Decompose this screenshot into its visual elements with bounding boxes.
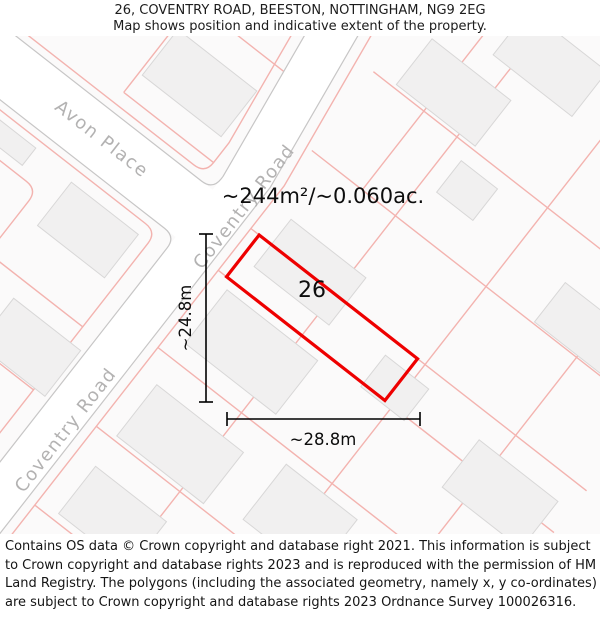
os-map: Coventry Road Coventry Road Avon Place ~… bbox=[0, 36, 600, 534]
copyright-notice: Contains OS data © Crown copyright and d… bbox=[5, 538, 597, 612]
plot-number-label: 26 bbox=[298, 278, 326, 303]
area-label: ~244m²/~0.060ac. bbox=[222, 184, 424, 208]
map-canvas: Coventry Road Coventry Road Avon Place ~… bbox=[0, 36, 600, 534]
height-dimension-label: ~24.8m bbox=[176, 285, 195, 352]
map-header: 26, COVENTRY ROAD, BEESTON, NOTTINGHAM, … bbox=[0, 0, 600, 36]
property-address-title: 26, COVENTRY ROAD, BEESTON, NOTTINGHAM, … bbox=[0, 0, 600, 19]
property-extent-page: { "header": { "line1": "26, COVENTRY ROA… bbox=[0, 0, 600, 625]
width-dimension-label: ~28.8m bbox=[290, 430, 357, 449]
map-subtitle: Map shows position and indicative extent… bbox=[0, 19, 600, 35]
